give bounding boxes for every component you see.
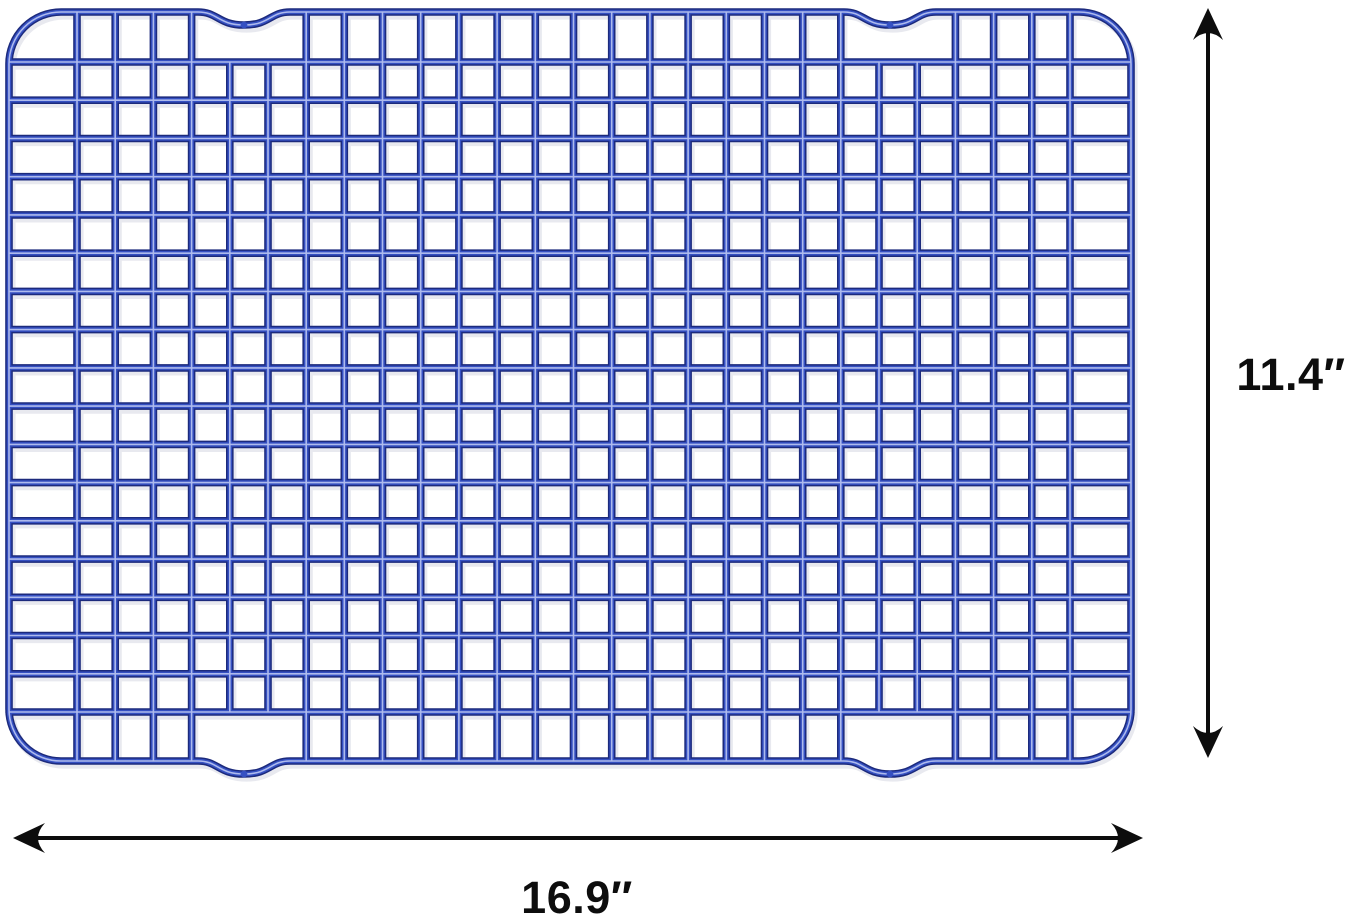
product-diagram: 11.4″ 16.9″ <box>0 0 1346 921</box>
cooling-rack <box>9 12 1134 778</box>
diagram-canvas: 11.4″ 16.9″ <box>0 0 1346 921</box>
height-dimension-label: 11.4″ <box>1236 349 1345 400</box>
width-dimension-label: 16.9″ <box>521 872 633 921</box>
height-dimension-annotation: 11.4″ <box>1193 8 1346 758</box>
horizontal-double-arrow-icon <box>13 823 1143 853</box>
vertical-double-arrow-icon <box>1193 8 1223 758</box>
width-dimension-annotation: 16.9″ <box>13 823 1143 921</box>
